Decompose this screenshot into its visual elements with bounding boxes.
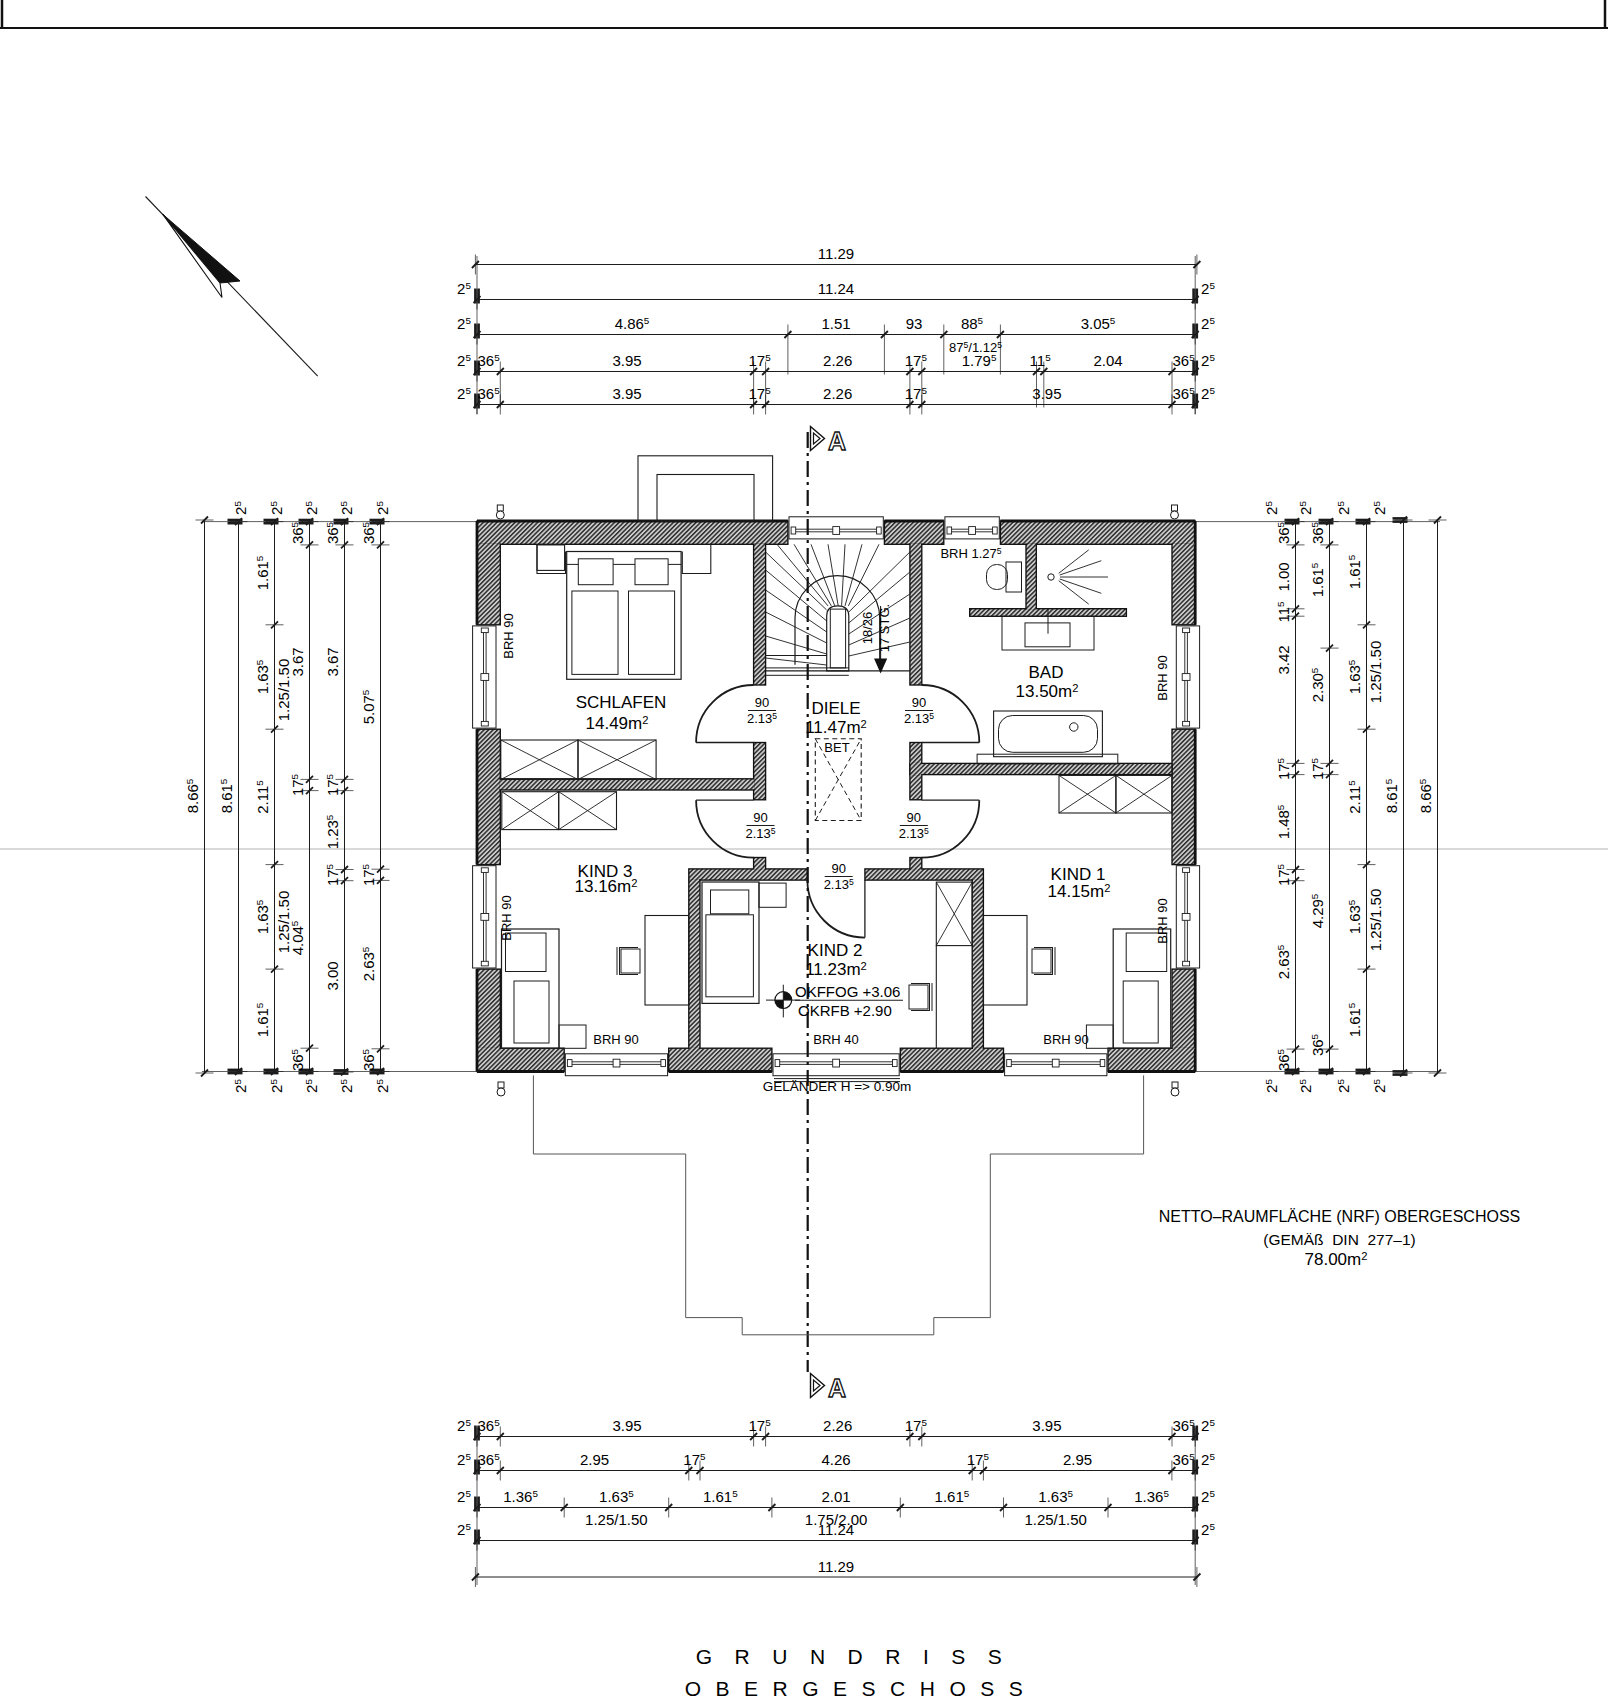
svg-text:KIND 2: KIND 2 [808,941,863,960]
svg-text:(GEMÄß DIN 277–1): (GEMÄß DIN 277–1) [1263,1231,1415,1248]
svg-text:90: 90 [755,695,769,710]
svg-text:1.00: 1.00 [1275,562,1292,591]
svg-text:A: A [828,1374,846,1402]
svg-text:11.24: 11.24 [818,280,854,297]
svg-text:11.23m2: 11.23m2 [805,960,867,979]
svg-text:11.24: 11.24 [818,1521,854,1538]
svg-text:3.95: 3.95 [1032,1417,1061,1434]
svg-text:BRH 90: BRH 90 [501,613,516,659]
svg-text:11.29: 11.29 [818,1558,854,1575]
svg-text:BRH 90: BRH 90 [1155,898,1170,944]
svg-text:2.01: 2.01 [821,1488,850,1505]
svg-text:78.00m2: 78.00m2 [1305,1250,1368,1269]
svg-text:2.95: 2.95 [580,1451,609,1468]
svg-text:1.25/1.50: 1.25/1.50 [585,1511,648,1528]
svg-text:1.25/1.50: 1.25/1.50 [1367,641,1384,704]
svg-text:BRH 90: BRH 90 [499,895,514,941]
svg-text:1.25/1.50: 1.25/1.50 [1024,1511,1087,1528]
svg-text:13.50m2: 13.50m2 [1016,682,1079,701]
svg-text:11.29: 11.29 [818,245,854,262]
svg-text:OKFFOG +3.06: OKFFOG +3.06 [795,983,900,1000]
svg-text:GELÄNDER H => 0.90m: GELÄNDER H => 0.90m [763,1079,912,1094]
svg-text:14.15m2: 14.15m2 [1048,882,1111,901]
svg-text:3.95: 3.95 [1032,385,1061,402]
svg-text:3.67: 3.67 [324,647,341,676]
svg-text:BRH 90: BRH 90 [1043,1032,1089,1047]
svg-text:OKRFB +2.90: OKRFB +2.90 [798,1002,892,1019]
svg-text:3.42: 3.42 [1275,645,1292,674]
svg-text:DIELE: DIELE [811,699,860,718]
svg-text:BET: BET [824,740,849,755]
svg-text:90: 90 [831,861,845,876]
svg-text:17 STG.: 17 STG. [877,604,892,652]
svg-text:NETTO–RAUMFLÄCHE (NRF) OBERGES: NETTO–RAUMFLÄCHE (NRF) OBERGESCHOSS [1159,1208,1521,1225]
svg-text:90: 90 [753,810,767,825]
svg-text:1.51: 1.51 [821,315,850,332]
svg-text:1.25/1.50: 1.25/1.50 [1367,889,1384,952]
svg-text:OBERGESCHOSS: OBERGESCHOSS [685,1677,1038,1700]
svg-text:BRH 40: BRH 40 [813,1032,859,1047]
svg-text:GRUNDRISS: GRUNDRISS [696,1645,1025,1668]
svg-text:13.16m2: 13.16m2 [575,877,638,896]
svg-text:14.49m2: 14.49m2 [586,714,649,733]
svg-text:4.26: 4.26 [821,1451,850,1468]
svg-text:3.95: 3.95 [612,1417,641,1434]
svg-text:BRH 90: BRH 90 [1155,655,1170,701]
svg-text:BRH 1.275: BRH 1.275 [940,546,1001,561]
svg-text:11.47m2: 11.47m2 [805,718,867,737]
svg-text:BAD: BAD [1029,663,1064,682]
svg-text:3.95: 3.95 [612,385,641,402]
svg-text:3.95: 3.95 [612,352,641,369]
svg-text:18/26: 18/26 [860,612,875,645]
svg-text:3.00: 3.00 [324,961,341,990]
svg-text:90: 90 [907,810,921,825]
svg-text:2.95: 2.95 [1063,1451,1092,1468]
svg-text:2.04: 2.04 [1093,352,1122,369]
svg-text:BRH 90: BRH 90 [593,1032,639,1047]
svg-text:3.67: 3.67 [289,647,306,676]
svg-text:90: 90 [912,695,926,710]
svg-text:2.26: 2.26 [823,1417,852,1434]
svg-text:A: A [828,427,846,455]
svg-text:2.26: 2.26 [823,385,852,402]
svg-text:2.26: 2.26 [823,352,852,369]
svg-text:93: 93 [906,315,923,332]
svg-text:SCHLAFEN: SCHLAFEN [576,693,667,712]
